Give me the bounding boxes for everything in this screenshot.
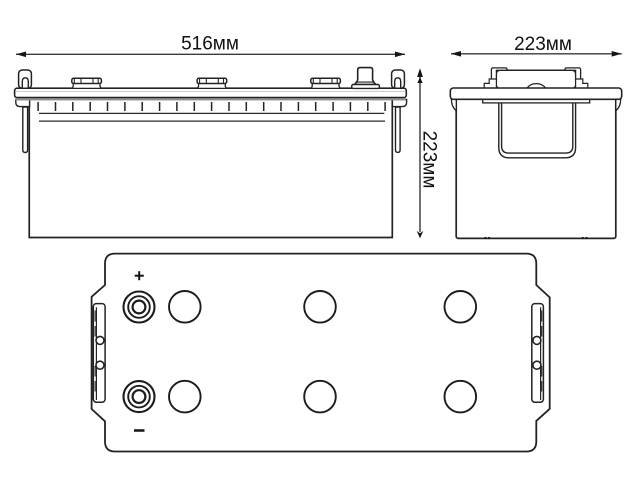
svg-text:223мм: 223мм — [514, 34, 572, 55]
svg-text:223мм: 223мм — [419, 131, 440, 189]
svg-text:516мм: 516мм — [181, 34, 239, 55]
